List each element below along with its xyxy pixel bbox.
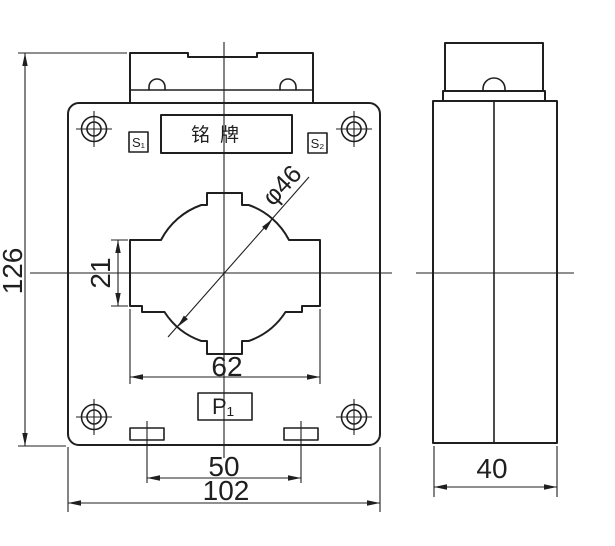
screw-hole-bottom-right [336, 399, 372, 435]
dim-label-aperture: φ46 [257, 160, 308, 211]
terminal-s1: S₁ [129, 132, 148, 152]
side-mounting-bracket [443, 43, 545, 101]
bracket-cap-outline [445, 43, 543, 91]
mounting-bracket [130, 53, 313, 103]
drawing-canvas: 铭牌 S₁ S₂ φ46 21 [0, 0, 615, 546]
bracket-arch [483, 78, 505, 91]
screw-hole-bottom-left [76, 399, 112, 435]
dim-label-40: 40 [476, 453, 507, 484]
dim-label-21: 21 [85, 257, 116, 288]
dim-overall-height: 126 [0, 53, 127, 446]
bracket-outline [130, 53, 313, 103]
terminal-s1-label: S₁ [132, 135, 146, 150]
ct-dimension-drawing: 铭牌 S₁ S₂ φ46 21 [0, 0, 615, 546]
nameplate: 铭牌 [161, 115, 292, 153]
dim-window-width: 62 [130, 309, 320, 384]
mounting-slot-right [284, 421, 318, 483]
terminal-p1-label: P₁ [212, 394, 234, 419]
terminal-s2: S₂ [308, 133, 327, 153]
dim-label-62: 62 [211, 351, 242, 382]
dim-aperture-diameter: φ46 [168, 160, 309, 337]
dim-depth: 40 [434, 446, 557, 497]
terminal-s2-label: S₂ [311, 136, 325, 151]
dim-label-102: 102 [203, 475, 250, 506]
nameplate-label: 铭牌 [191, 124, 249, 146]
front-view: 铭牌 S₁ S₂ φ46 21 [0, 42, 392, 512]
bracket-flange-outline [443, 91, 545, 101]
bracket-arch-left [149, 79, 165, 90]
mounting-slot-left [130, 421, 164, 483]
terminal-p1: P₁ [198, 393, 252, 420]
screw-hole-top-left [76, 111, 112, 147]
screw-hole-top-right [336, 111, 372, 147]
side-body-outline [433, 101, 557, 443]
dim-label-126: 126 [0, 248, 28, 295]
side-view: 40 [416, 43, 574, 497]
bracket-arch-right [280, 79, 296, 90]
